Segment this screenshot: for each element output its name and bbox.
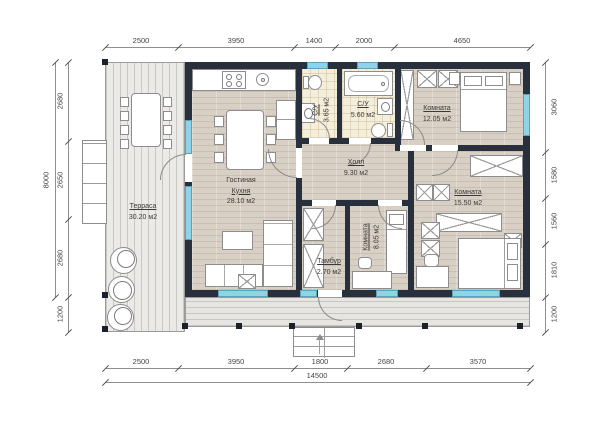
dim-label: 3060 bbox=[550, 99, 559, 116]
tv-stand-icon bbox=[238, 274, 256, 289]
dim-label: 2680 bbox=[56, 250, 65, 267]
chair-icon bbox=[214, 134, 224, 145]
toilet-icon bbox=[308, 75, 322, 90]
door-opening bbox=[400, 145, 426, 151]
closet-icon bbox=[470, 155, 523, 177]
toilet-tank-icon bbox=[387, 123, 393, 137]
double-bed bbox=[458, 238, 521, 289]
wall-interior bbox=[296, 69, 302, 290]
chair-icon bbox=[120, 111, 129, 121]
coffee-table bbox=[222, 231, 253, 250]
chair-icon bbox=[120, 97, 129, 107]
room-label-bath-large: С/У5.60 м2 bbox=[351, 100, 375, 121]
room-label-vestibule: Тамбур2.70 м2 bbox=[317, 257, 341, 278]
post bbox=[289, 323, 295, 329]
dim-label: 1200 bbox=[550, 306, 559, 323]
lounge-chair-icon bbox=[108, 276, 135, 303]
wardrobe-icon bbox=[417, 70, 437, 88]
post bbox=[236, 323, 242, 329]
dim-label: 1580 bbox=[550, 167, 559, 184]
pillow bbox=[485, 76, 503, 86]
post bbox=[422, 323, 428, 329]
pillow bbox=[507, 243, 518, 260]
desk bbox=[416, 266, 449, 288]
chair-icon bbox=[120, 139, 129, 149]
direction-arrow-shaft bbox=[319, 338, 320, 354]
dim-label: 2650 bbox=[56, 172, 65, 189]
desk bbox=[352, 271, 392, 289]
stove-icon bbox=[222, 71, 246, 89]
sofa-sectional-vertical bbox=[263, 220, 293, 287]
wall-interior bbox=[408, 151, 414, 290]
wardrobe-icon bbox=[421, 222, 440, 239]
chair-icon bbox=[163, 139, 172, 149]
chair-icon bbox=[163, 97, 172, 107]
pillow bbox=[464, 76, 482, 86]
room-label-bedroom3: Комната8.05 м2 bbox=[362, 223, 383, 250]
nightstand bbox=[509, 72, 521, 85]
nightstand bbox=[449, 72, 460, 85]
chair-icon bbox=[214, 116, 224, 127]
toilet-icon bbox=[371, 123, 386, 138]
chair-icon bbox=[214, 152, 224, 163]
window bbox=[307, 62, 328, 69]
room-label-bedroom1: Комната12.05 м2 bbox=[423, 104, 451, 125]
entrance-door-opening bbox=[318, 290, 342, 297]
dim-label: 2680 bbox=[56, 93, 65, 110]
post bbox=[182, 323, 188, 329]
wall-interior bbox=[345, 206, 350, 290]
chair-icon bbox=[266, 134, 276, 145]
room-label-hall: Холл9.30 м2 bbox=[344, 158, 368, 179]
floor-plan-canvas: { "dimensions": { "top": ["2500","3950",… bbox=[0, 0, 600, 434]
post bbox=[356, 323, 362, 329]
window bbox=[185, 186, 192, 240]
dimension-line-top bbox=[105, 47, 530, 48]
dim-label: 1810 bbox=[550, 262, 559, 279]
dim-label: 1800 bbox=[312, 357, 329, 366]
window bbox=[185, 120, 192, 154]
post bbox=[102, 59, 108, 65]
dim-label: 1200 bbox=[56, 306, 65, 323]
chair-icon bbox=[120, 125, 129, 135]
bathtub-icon bbox=[344, 71, 393, 96]
steps-divider bbox=[324, 328, 325, 358]
dim-label: 2000 bbox=[356, 36, 373, 45]
dim-label: 3570 bbox=[470, 357, 487, 366]
dim-label: 1560 bbox=[550, 213, 559, 230]
double-bed bbox=[460, 72, 507, 132]
pillow bbox=[507, 264, 518, 281]
dining-table bbox=[226, 110, 264, 170]
fridge-icon bbox=[276, 100, 296, 140]
chair-icon bbox=[266, 116, 276, 127]
dimension-line-left bbox=[68, 62, 69, 332]
room-label-bedroom2: Комната15.50 м2 bbox=[454, 188, 482, 209]
room-label-bath-small: С/У3.65 м2 bbox=[312, 98, 333, 122]
kitchen-sink-icon bbox=[256, 73, 269, 86]
dim-label: 8000 bbox=[42, 172, 51, 189]
post bbox=[517, 323, 523, 329]
dim-label: 3950 bbox=[228, 36, 245, 45]
window bbox=[218, 290, 268, 297]
wall-interior bbox=[337, 69, 342, 141]
dim-label: 4650 bbox=[454, 36, 471, 45]
dim-label: 2680 bbox=[378, 357, 395, 366]
chair-icon bbox=[163, 111, 172, 121]
post bbox=[102, 292, 108, 298]
window bbox=[523, 94, 530, 136]
lounge-chair-icon bbox=[110, 247, 137, 274]
terrace-bench bbox=[82, 140, 107, 224]
chair-icon bbox=[163, 125, 172, 135]
room-label-terrace: Терраса30.20 м2 bbox=[129, 202, 157, 223]
door-opening bbox=[185, 154, 192, 182]
outdoor-dining-table bbox=[131, 93, 161, 147]
wardrobe-icon bbox=[416, 184, 433, 201]
wardrobe-icon bbox=[433, 184, 450, 201]
entry-steps bbox=[293, 327, 355, 357]
dimension-line-bottom-total bbox=[105, 382, 530, 383]
lounge-chair-icon bbox=[107, 304, 134, 331]
dim-label: 14500 bbox=[307, 371, 328, 380]
desk-chair-icon bbox=[424, 254, 439, 267]
closet-icon bbox=[436, 213, 502, 232]
dim-label: 2500 bbox=[133, 36, 150, 45]
dim-label: 1400 bbox=[306, 36, 323, 45]
room-label-living-kitchen: Гостиная Кухня 28.10 м2 bbox=[226, 176, 255, 208]
window bbox=[376, 290, 398, 297]
window bbox=[452, 290, 500, 297]
post bbox=[102, 326, 108, 332]
window bbox=[357, 62, 378, 69]
window bbox=[300, 290, 317, 297]
dimension-line-bottom bbox=[105, 368, 530, 369]
washing-machine-icon bbox=[377, 98, 393, 115]
dim-label: 3950 bbox=[228, 357, 245, 366]
dim-label: 2500 bbox=[133, 357, 150, 366]
desk-chair-icon bbox=[358, 257, 372, 269]
direction-arrow-icon bbox=[316, 334, 324, 340]
